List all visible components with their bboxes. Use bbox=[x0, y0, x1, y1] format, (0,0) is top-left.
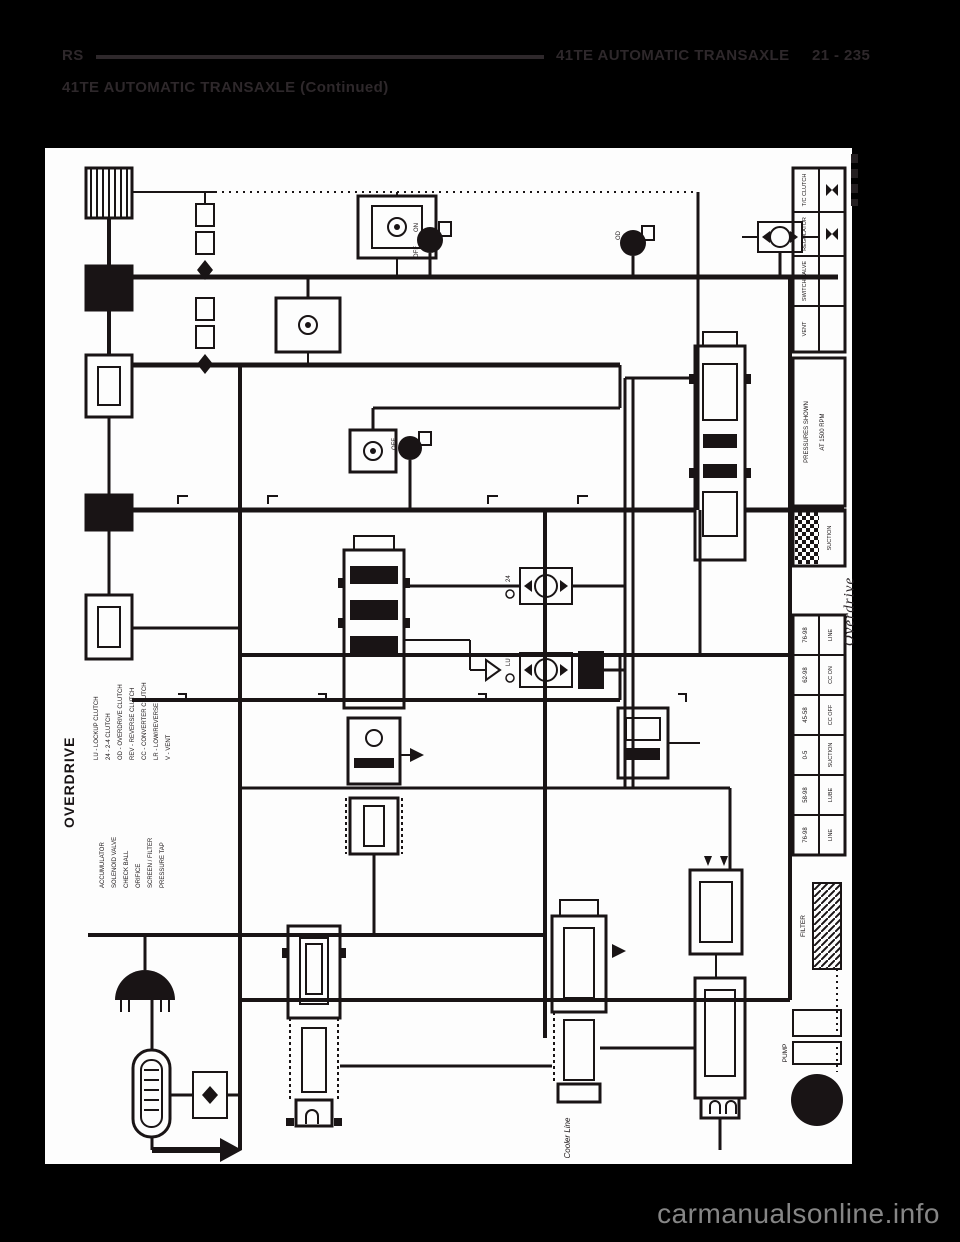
solenoid-label-off: OFF bbox=[392, 438, 398, 450]
pressure-value: 45-58 bbox=[803, 707, 809, 723]
edge-overdrive-label: Overdrive bbox=[842, 552, 859, 672]
note-line: AT 1500 RPM bbox=[820, 413, 826, 450]
shift-valve-e bbox=[695, 978, 745, 1150]
header-code: RS bbox=[62, 47, 84, 64]
orifice-stack-a bbox=[196, 192, 214, 280]
legend-note-box bbox=[793, 358, 845, 506]
pump-block bbox=[791, 1010, 843, 1126]
header-rule bbox=[96, 55, 544, 59]
pressure-value: 58-98 bbox=[803, 787, 809, 803]
legend1-item: LR - LOW/REVERSE bbox=[154, 703, 160, 760]
legend-suction-box bbox=[793, 510, 845, 566]
legend1-item: OD - OVERDRIVE CLUTCH bbox=[118, 684, 124, 760]
pressure-label: CC ON bbox=[828, 666, 834, 684]
legend2-item: ORIFICE bbox=[136, 864, 142, 888]
suction-label: SUCTION bbox=[827, 526, 833, 551]
solenoid-b bbox=[620, 226, 654, 277]
check-ball-box-b bbox=[276, 277, 340, 365]
shift-valve-a bbox=[282, 926, 346, 1126]
header-subtitle: 41TE AUTOMATIC TRANSAXLE (Continued) bbox=[62, 79, 389, 96]
pressure-label: LUBE bbox=[828, 787, 834, 802]
right-table-row: VENT bbox=[802, 321, 808, 336]
check-valve-24 bbox=[506, 568, 625, 604]
valve-train-main bbox=[338, 536, 520, 708]
overdrive-section-label: OVERDRIVE bbox=[61, 737, 77, 828]
left-component-stack bbox=[86, 168, 132, 659]
legend1-item: CC - CONVERTER CLUTCH bbox=[142, 682, 148, 760]
cooler-line-label: Cooler Line bbox=[563, 1117, 572, 1158]
note-line: PRESSURES SHOWN bbox=[804, 401, 810, 463]
pressure-value: 0-5 bbox=[803, 750, 809, 759]
manual-page: RS 41TE AUTOMATIC TRANSAXLE 21 - 235 41T… bbox=[0, 0, 960, 1242]
shift-valve-d bbox=[690, 788, 742, 978]
watermark-link[interactable]: carmanualsonline.info bbox=[657, 1198, 940, 1230]
filter-capsule bbox=[133, 1000, 170, 1150]
legend1-item: V - VENT bbox=[166, 734, 172, 760]
right-table-row: T/C CLUTCH bbox=[802, 174, 808, 207]
tap-label-24: 24 bbox=[506, 575, 512, 582]
switch-valve-cluster bbox=[618, 708, 700, 778]
solenoid-c bbox=[398, 432, 431, 510]
accumulator-dome bbox=[115, 935, 175, 1012]
pump-label: PUMP bbox=[782, 1044, 789, 1063]
flow-arrow bbox=[152, 1138, 242, 1162]
legend1-item: 24 - 2-4 CLUTCH bbox=[106, 713, 112, 760]
pressure-label: LINE bbox=[828, 629, 834, 642]
right-table-row: REGULATOR bbox=[802, 217, 808, 251]
legend2-item: SOLENOID VALVE bbox=[112, 837, 118, 888]
solenoid-label-od: OD bbox=[616, 230, 622, 240]
pressure-label: CC OFF bbox=[828, 704, 834, 725]
return-valve bbox=[170, 1072, 240, 1118]
valve-train-lower bbox=[346, 718, 424, 935]
hydraulic-schematic: OVERDRIVE LU - LOCKUP CLUTCH 24 - 2-4 CL… bbox=[58, 148, 852, 1164]
pressure-value: 76-98 bbox=[803, 827, 809, 843]
legend2-item: SCREEN / FILTER bbox=[148, 837, 154, 888]
legend-table-top bbox=[793, 168, 845, 352]
check-valve-top bbox=[742, 222, 820, 277]
legend-pressure-table bbox=[793, 615, 845, 855]
filter-label: FILTER bbox=[800, 915, 807, 937]
legend2-item: PRESSURE TAP bbox=[160, 842, 166, 888]
header-page-number: 21 - 235 bbox=[812, 47, 870, 64]
pressure-value: 62-98 bbox=[803, 667, 809, 683]
legend2-item: ACCUMULATOR bbox=[100, 842, 106, 888]
pressure-buses bbox=[88, 277, 844, 1150]
schematic-plate: OVERDRIVE LU - LOCKUP CLUTCH 24 - 2-4 CL… bbox=[45, 148, 852, 1164]
check-ball-box-c bbox=[350, 430, 396, 472]
header-title: 41TE AUTOMATIC TRANSAXLE bbox=[556, 47, 790, 64]
pressure-label: LINE bbox=[828, 829, 834, 842]
top-dotted-line bbox=[132, 192, 698, 510]
legend2-item: CHECK BALL bbox=[124, 850, 130, 888]
solenoid-label-off: OFF bbox=[414, 246, 420, 258]
legend-filter-hatch bbox=[813, 883, 841, 1072]
legend1-item: LU - LOCKUP CLUTCH bbox=[94, 696, 100, 760]
edge-registration-marks bbox=[851, 154, 858, 206]
solenoid-label-on: ON bbox=[414, 223, 420, 232]
pressure-value: 76-98 bbox=[803, 627, 809, 643]
pressure-label: SUCTION bbox=[828, 743, 834, 768]
legend1-item: REV - REVERSE CLUTCH bbox=[130, 688, 136, 760]
tap-label-lu: LU bbox=[506, 658, 512, 666]
solenoid-a bbox=[417, 222, 451, 277]
right-table-row: SWITCH VALVE bbox=[802, 261, 808, 301]
